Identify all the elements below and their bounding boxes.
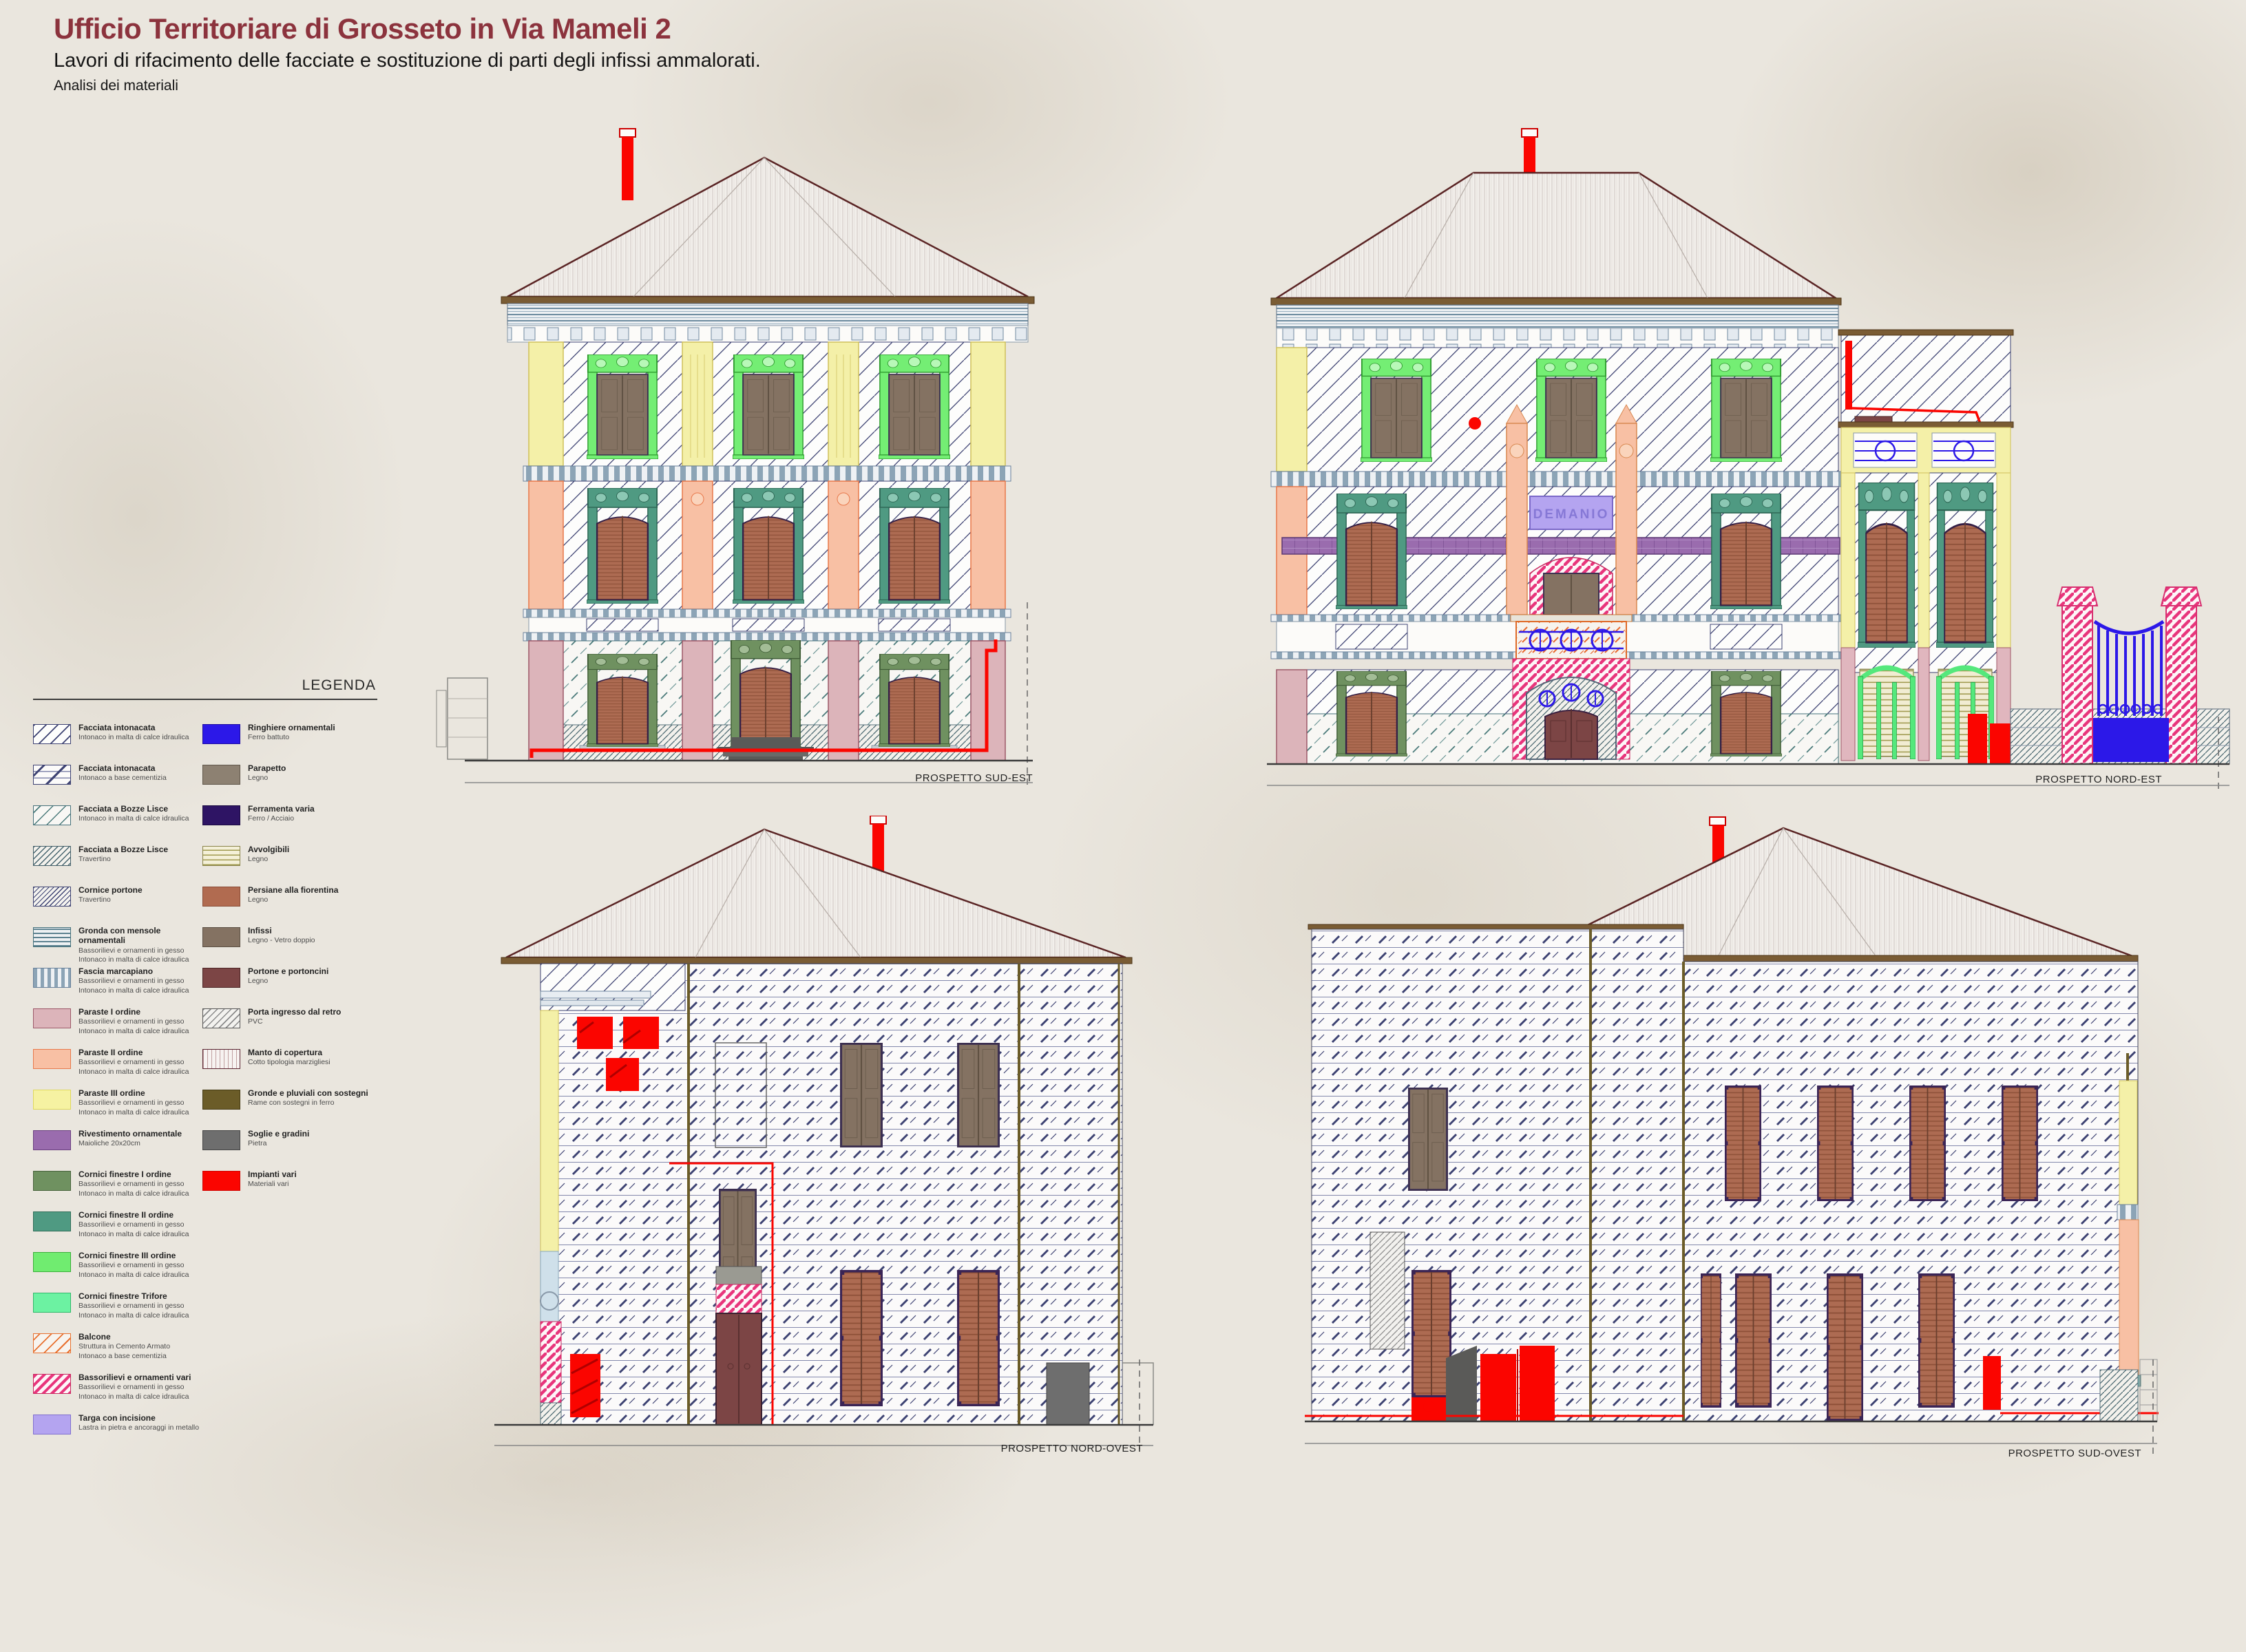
- legend-item-desc: Rame con sostegni in ferro: [248, 1099, 375, 1108]
- impianti-box: [1968, 714, 1987, 763]
- legend-item-title: Portone e portoncini: [248, 966, 375, 976]
- legend-item-left-16: Bassorilievi e ornamenti vari Bassorilie…: [33, 1373, 202, 1413]
- legend-item-title: Porta ingresso dal retro: [248, 1007, 375, 1017]
- window-second-floor: [587, 488, 658, 604]
- pilaster-first-order: [1277, 670, 1307, 764]
- window-persiana-narrow: [1701, 1273, 1721, 1408]
- legend-item-left-14: Cornici finestre Trifore Bassorilievi e …: [33, 1291, 202, 1332]
- caption-nord-ovest: PROSPETTO NORD-OVEST: [905, 1443, 1143, 1454]
- legend-item-desc: Bassorilievi e ornamenti in gesso Intona…: [78, 1261, 205, 1280]
- impianti-red-pipe: [1845, 341, 1852, 410]
- left-edge-pilasters: [540, 1010, 561, 1425]
- legend-swatch: [33, 1130, 71, 1150]
- ground-floor: [529, 640, 1005, 761]
- impianti-box: [1983, 1356, 2001, 1410]
- legend-item-title: Paraste II ordine: [78, 1048, 205, 1057]
- legend-item-desc: Struttura in Cemento Armato Intonaco a b…: [78, 1342, 205, 1361]
- legend-item-title: Rivestimento ornamentale: [78, 1129, 205, 1139]
- legend-item-left-0: Facciata intonacata Intonaco in malta di…: [33, 723, 202, 763]
- legend-item-right-3: Avvolgibili Legno: [202, 845, 381, 885]
- annex-pilaster: [1918, 648, 1929, 761]
- legend-swatch: [33, 1049, 71, 1069]
- elevation-sud-est: [427, 127, 1040, 802]
- gate-pillar: [2057, 587, 2097, 764]
- legend-item-left-3: Facciata a Bozze Lisce Travertino: [33, 845, 202, 885]
- neighbor-outline: [437, 678, 487, 759]
- window-persiana: [2002, 1086, 2038, 1201]
- legend-item-left-6: Fascia marcapiano Bassorilievi e ornamen…: [33, 966, 202, 1007]
- legend-item-desc: Bassorilievi e ornamenti in gesso Intona…: [78, 1058, 205, 1077]
- legend-title: LEGENDA: [33, 677, 377, 694]
- legend-item-title: Manto di copertura: [248, 1048, 375, 1057]
- legend-item-left-7: Paraste I ordine Bassorilievi e ornament…: [33, 1007, 202, 1048]
- caption-nord-est: PROSPETTO NORD-EST: [1921, 774, 2162, 785]
- legend-item-title: Paraste III ordine: [78, 1088, 205, 1098]
- legend-item-desc: Travertino: [78, 855, 205, 864]
- legend-item-desc: Legno: [248, 855, 375, 864]
- legend-item-desc: Legno: [248, 896, 375, 904]
- legend-item-right-2: Ferramenta varia Ferro / Acciaio: [202, 804, 381, 845]
- legend-item-right-0: Ringhiere ornamentali Ferro battuto: [202, 723, 381, 763]
- right-edge-pilasters: [2116, 1081, 2141, 1386]
- window-persiana: [1735, 1273, 1772, 1408]
- legend-item-desc: Ferro battuto: [248, 733, 375, 742]
- boundary-wall-and-gate: [2011, 587, 2229, 764]
- legend-item-title: Facciata intonacata: [78, 763, 205, 773]
- legend-swatch: [202, 968, 240, 988]
- legend-item-desc: Bassorilievi e ornamenti in gesso Intona…: [78, 1099, 205, 1117]
- annex-window: [1936, 483, 1994, 648]
- legend-item-right-9: Gronde e pluviali con sostegni Rame con …: [202, 1088, 381, 1129]
- legend-item-desc: Bassorilievi e ornamenti in gesso Intona…: [78, 1302, 205, 1320]
- legend-swatch: [33, 805, 71, 825]
- annex-wing: [1838, 330, 2013, 761]
- legend-swatch: [33, 1252, 71, 1272]
- second-floor: [529, 481, 1005, 609]
- impianti-tanks: [1480, 1346, 1555, 1421]
- legend-item-title: Gronde e pluviali con sostegni: [248, 1088, 375, 1098]
- legend-swatch: [202, 927, 240, 947]
- caption-sud-est: PROSPETTO SUD-EST: [792, 772, 1033, 784]
- third-floor: [1277, 348, 1838, 472]
- legend-swatch: [33, 927, 71, 947]
- legend-item-left-13: Cornici finestre III ordine Bassorilievi…: [33, 1251, 202, 1291]
- annex-window: [1858, 483, 1916, 648]
- legend-item-title: Soglie e gradini: [248, 1129, 375, 1139]
- fascia-marcapiano: [523, 466, 1011, 481]
- window-third-floor: [1361, 359, 1432, 462]
- legend-item-title: Impianti vari: [248, 1169, 375, 1179]
- legend-swatch: [33, 968, 71, 988]
- window-gray: [841, 1044, 882, 1146]
- legend-item-desc: Legno: [248, 977, 375, 986]
- legend-swatch: [202, 1171, 240, 1191]
- legend-item-right-5: Infissi Legno - Vetro doppio: [202, 926, 381, 966]
- legend-item-title: Infissi: [248, 926, 375, 935]
- legend-item-desc: Bassorilievi e ornamenti in gesso Intona…: [78, 1220, 205, 1239]
- legend-item-left-17: Targa con incisione Lastra in pietra e a…: [33, 1413, 202, 1454]
- title-block: Ufficio Territoriare di Grosseto in Via …: [54, 12, 761, 94]
- legend-swatch: [33, 1415, 71, 1434]
- window-gray: [958, 1044, 999, 1146]
- legend-item-title: Cornici finestre I ordine: [78, 1169, 205, 1179]
- window-persiana: [1725, 1086, 1761, 1201]
- legend-item-desc: Bassorilievi e ornamenti in gesso Intona…: [78, 1383, 205, 1401]
- legend-column-right: Ringhiere ornamentali Ferro battuto Para…: [202, 723, 381, 1210]
- iron-gate: [2093, 622, 2169, 762]
- rear-door: [716, 1267, 762, 1425]
- legend-swatch: [202, 1090, 240, 1110]
- legend-item-desc: Bassorilievi e ornamenti in gesso Intona…: [78, 1017, 205, 1036]
- window-persiana: [957, 1270, 1000, 1406]
- window-ground-floor: [1710, 671, 1782, 756]
- annex-pilaster: [1841, 648, 1855, 761]
- legend-item-title: Facciata intonacata: [78, 723, 205, 732]
- legend-swatch: [33, 887, 71, 907]
- legend-item-desc: Pietra: [248, 1139, 375, 1148]
- porta-retro-pvc: [1370, 1232, 1405, 1349]
- legend-item-desc: Bassorilievi e ornamenti in gesso Intona…: [78, 977, 205, 995]
- window-persiana: [1909, 1086, 1946, 1201]
- window-persiana: [1411, 1270, 1451, 1397]
- legend-item-left-1: Facciata intonacata Intonaco a base ceme…: [33, 763, 202, 804]
- legend-item-left-8: Paraste II ordine Bassorilievi e ornamen…: [33, 1048, 202, 1088]
- step-outline: [1122, 1363, 1153, 1425]
- window-ground-floor: [879, 654, 950, 747]
- legend-item-desc: Bassorilievi e ornamenti in gesso Intona…: [78, 946, 205, 965]
- fascia-marcapiano: [1271, 472, 1841, 487]
- legend-item-desc: PVC: [248, 1017, 375, 1026]
- legend-item-right-4: Persiane alla fiorentina Legno: [202, 885, 381, 926]
- legend-item-desc: Bassorilievi e ornamenti in gesso Intona…: [78, 1180, 205, 1198]
- legend-swatch: [202, 887, 240, 907]
- pilaster-third-order: [1277, 348, 1307, 472]
- legend-swatch: [33, 1171, 71, 1191]
- legend-item-desc: Intonaco a base cementizia: [78, 774, 205, 783]
- caption-sud-ovest: PROSPETTO SUD-OVEST: [1904, 1448, 2141, 1459]
- legend-swatch: [33, 846, 71, 866]
- legend-item-left-12: Cornici finestre II ordine Bassorilievi …: [33, 1210, 202, 1251]
- window-second-floor: [733, 488, 804, 604]
- window-gray: [1409, 1088, 1447, 1189]
- legend-swatch: [202, 1008, 240, 1028]
- legend-item-title: Cornice portone: [78, 885, 205, 895]
- window-persiana: [840, 1270, 883, 1406]
- targa-text: DEMANIO: [1533, 507, 1610, 522]
- legend-item-title: Gronda con mensole ornamentali: [78, 926, 205, 946]
- legend-item-desc: Ferro / Acciaio: [248, 814, 375, 823]
- legend-swatch: [33, 1333, 71, 1353]
- ground-floor: [1277, 659, 1838, 764]
- legend-item-left-4: Cornice portone Travertino: [33, 885, 202, 926]
- legend-swatch: [33, 1293, 71, 1313]
- legend-rule: [33, 699, 377, 700]
- legend-item-right-1: Parapetto Legno: [202, 763, 381, 804]
- legend-item-title: Cornici finestre II ordine: [78, 1210, 205, 1220]
- legend-item-desc: Intonaco in malta di calce idraulica: [78, 814, 205, 823]
- legend-swatch: [33, 1374, 71, 1394]
- legend-item-right-11: Impianti vari Materiali vari: [202, 1169, 381, 1210]
- roof: [1271, 173, 1841, 305]
- legend-item-right-6: Portone e portoncini Legno: [202, 966, 381, 1007]
- legend-item-desc: Legno: [248, 774, 375, 783]
- gray-structure: [1446, 1346, 1477, 1421]
- legend-item-left-9: Paraste III ordine Bassorilievi e orname…: [33, 1088, 202, 1129]
- legend-item-desc: Cotto tipologia marzigliesi: [248, 1058, 375, 1067]
- roof: [501, 829, 1132, 964]
- legend-item-right-10: Soglie e gradini Pietra: [202, 1129, 381, 1169]
- legend-swatch: [202, 846, 240, 866]
- legend-swatch: [33, 1211, 71, 1231]
- annex-balcony-band: [1841, 427, 2011, 473]
- legend-item-title: Facciata a Bozze Lisce: [78, 804, 205, 814]
- elevation-nord-est: DEMANIO: [1232, 127, 2231, 805]
- legend-item-title: Cornici finestre III ordine: [78, 1251, 205, 1260]
- window-ground-floor: [587, 654, 658, 747]
- legend-swatch: [33, 1008, 71, 1028]
- legend-item-left-10: Rivestimento ornamentale Maioliche 20x20…: [33, 1129, 202, 1169]
- legend-item-title: Balcone: [78, 1332, 205, 1342]
- legend-swatch: [202, 1049, 240, 1069]
- legend-item-title: Targa con incisione: [78, 1413, 205, 1423]
- legend-item-right-7: Porta ingresso dal retro PVC: [202, 1007, 381, 1048]
- legend-swatch: [33, 1090, 71, 1110]
- window-second-floor: [879, 488, 950, 604]
- page-title: Ufficio Territoriare di Grosseto in Via …: [54, 12, 761, 45]
- main-entrance: [1513, 659, 1630, 759]
- legend-item-desc: Travertino: [78, 896, 205, 904]
- window-third-floor: [879, 354, 950, 459]
- bozze-corner: [2100, 1370, 2138, 1421]
- legend-item-left-11: Cornici finestre I ordine Bassorilievi e…: [33, 1169, 202, 1210]
- impianti-box: [1990, 723, 2011, 763]
- window-third-floor: [587, 354, 658, 459]
- legend-item-left-15: Balcone Struttura in Cemento Armato Into…: [33, 1332, 202, 1373]
- legend-item-desc: Maioliche 20x20cm: [78, 1139, 205, 1148]
- gronda-cornice: [507, 304, 1028, 342]
- elevation-nord-ovest: [475, 816, 1157, 1487]
- gronda-cornice: [1277, 305, 1838, 348]
- window-ground-floor: [1336, 671, 1407, 756]
- legend-swatch: [202, 765, 240, 785]
- legend-item-title: Persiane alla fiorentina: [248, 885, 375, 895]
- legend-item-title: Avvolgibili: [248, 845, 375, 854]
- main-door: [730, 640, 801, 750]
- legend-swatch: [202, 805, 240, 825]
- wing-coping: [1308, 924, 1683, 929]
- legend-swatch: [202, 724, 240, 744]
- legend-item-desc: Materiali vari: [248, 1180, 375, 1189]
- page-subtitle: Lavori di rifacimento delle facciate e s…: [54, 50, 761, 72]
- legend-item-title: Parapetto: [248, 763, 375, 773]
- window-third-floor: [733, 354, 804, 459]
- legend-item-title: Ringhiere ornamentali: [248, 723, 375, 732]
- window-third-floor: [1535, 359, 1607, 462]
- legend-item-desc: Lastra in pietra e ancoraggi in metallo: [78, 1423, 205, 1432]
- legend-swatch: [33, 724, 71, 744]
- shopfront-trifora: [1858, 668, 1916, 759]
- legend-swatch: [33, 765, 71, 785]
- legend-item-title: Bassorilievi e ornamenti vari: [78, 1373, 205, 1382]
- wing-wall: [1312, 929, 1683, 1421]
- corner-cornice: [540, 964, 685, 1010]
- elevation-sud-ovest: [1305, 816, 2159, 1487]
- legend-item-left-5: Gronda con mensole ornamentali Bassorili…: [33, 926, 202, 966]
- legend-item-right-8: Manto di copertura Cotto tipologia marzi…: [202, 1048, 381, 1088]
- chimney: [620, 129, 636, 200]
- door-persiana: [1827, 1273, 1863, 1421]
- roof: [501, 158, 1034, 304]
- legend-item-title: Fascia marcapiano: [78, 966, 205, 976]
- page-note: Analisi dei materiali: [54, 78, 761, 94]
- parapet-band: [523, 609, 1011, 641]
- window-persiana: [1918, 1273, 1955, 1408]
- third-floor: [529, 342, 1005, 466]
- window-third-floor: [1710, 359, 1782, 462]
- legend-item-title: Facciata a Bozze Lisce: [78, 845, 205, 854]
- window-second-floor: [1710, 494, 1782, 609]
- gray-door: [1047, 1363, 1089, 1425]
- legend-item-desc: Intonaco in malta di calce idraulica: [78, 733, 205, 742]
- impianti-red-dot: [1423, 1401, 1434, 1412]
- legend-item-title: Cornici finestre Trifore: [78, 1291, 205, 1301]
- legend-item-left-2: Facciata a Bozze Lisce Intonaco in malta…: [33, 804, 202, 845]
- impianti-red-dot: [1469, 417, 1481, 430]
- legend-column-left: Facciata intonacata Intonaco in malta di…: [33, 723, 202, 1454]
- balcony: [1511, 615, 1632, 659]
- legend: LEGENDA Facciata intonacata Intonaco in …: [33, 677, 377, 700]
- window-persiana: [1817, 1086, 1854, 1201]
- window-second-floor: [1336, 494, 1407, 609]
- legend-item-title: Ferramenta varia: [248, 804, 375, 814]
- legend-swatch: [202, 1130, 240, 1150]
- legend-item-title: Paraste I ordine: [78, 1007, 205, 1017]
- legend-item-desc: Legno - Vetro doppio: [248, 936, 375, 945]
